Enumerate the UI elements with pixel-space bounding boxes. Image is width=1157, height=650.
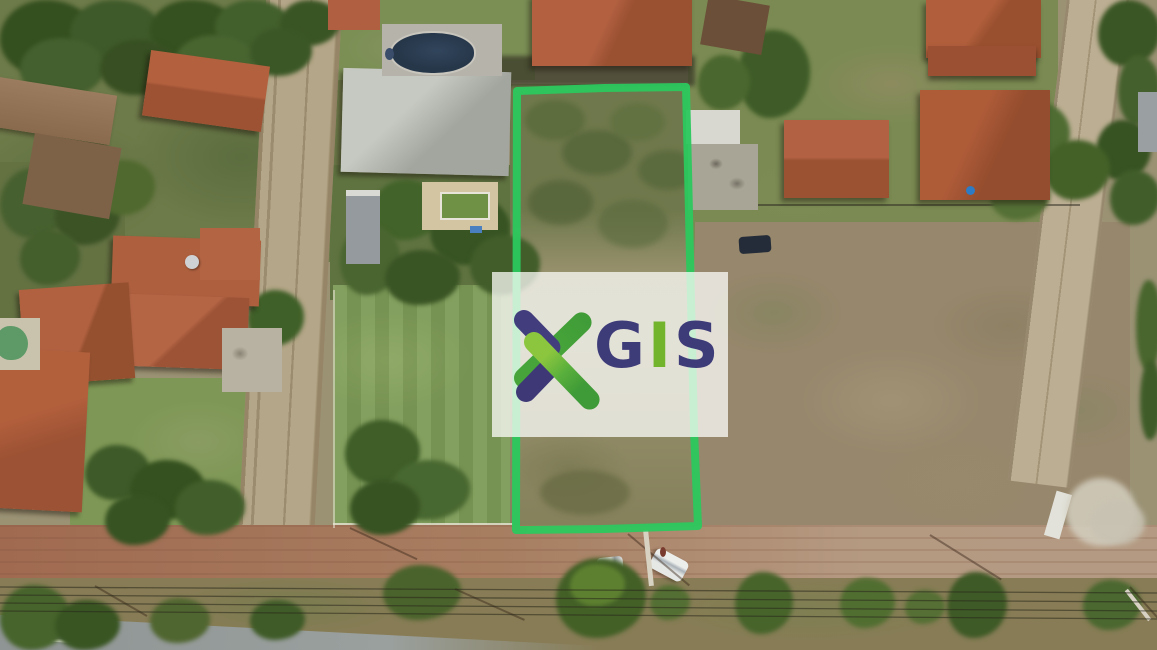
watermark-panel: GIS [492, 272, 728, 437]
logo-letter-g: G [594, 309, 648, 382]
logo-text: GIS [594, 316, 722, 376]
logo-letter-i: I [648, 309, 674, 382]
aerial-photo: GIS [0, 0, 1157, 650]
logo-letter-s: S [674, 309, 722, 382]
